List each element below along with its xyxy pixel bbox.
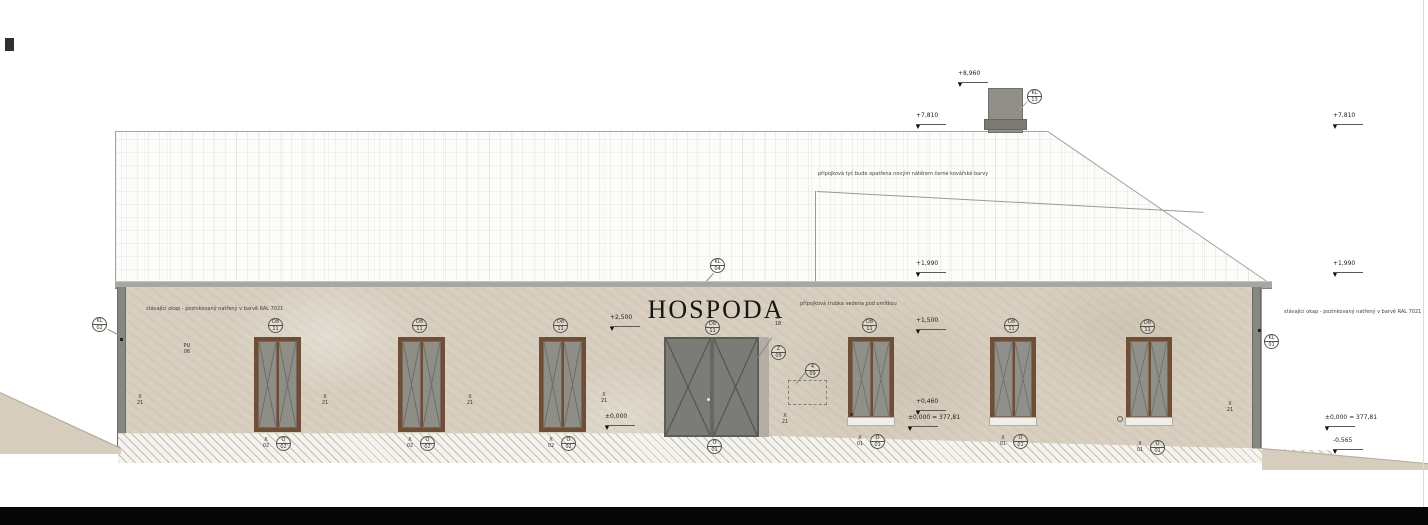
annotation-label: stávající okap - pozinkovaný natřený v b… [1284,309,1421,315]
reference-code-top: D8 [413,319,426,326]
reference-code-bottom: 21 [1223,407,1237,413]
reference-code-bottom: 21 [463,400,477,406]
window-1 [848,337,894,421]
reference-code-bottom: 21 [597,398,611,404]
drawing-frame-edge [1423,0,1424,507]
reference-text-mark: X 18 [771,315,785,327]
elevation-marker: +1,990 [1333,260,1363,273]
roof-ridge-line [115,131,1048,132]
door-leaf [421,341,441,428]
reference-code-bottom: 02 [93,325,106,331]
reference-code-top: O [871,435,884,442]
reference-code-bottom: 01 [871,442,884,448]
reference-code-bottom: 18 [771,321,785,327]
reference-code-bottom: 11 [1005,326,1018,332]
reference-code-bottom: 01 [1133,447,1147,453]
door-leaf [562,341,582,428]
elevation-flag-icon [1333,124,1363,125]
elevation-value: ±0,000 = 377,81 [908,414,960,421]
reference-bubble: D8 11 [412,318,427,333]
reference-bubble: O 02 [561,436,576,451]
reference-code-bottom: 21 [133,400,147,406]
elevation-flag-icon [908,426,938,427]
elevation-value: +2,500 [610,314,632,321]
reference-code-bottom: 02 [562,444,575,450]
main-entrance-door [664,337,759,437]
reference-code-bottom: 01 [853,441,867,447]
elevation-marker: +1,990 [916,260,946,273]
reference-code-top: D8 [269,319,282,326]
reference-code-top: D8 [1005,319,1018,326]
elevation-value: +0,460 [916,398,938,405]
reference-code-bottom: 01 [1151,448,1164,454]
reference-code-bottom: 11 [1141,327,1154,333]
reference-code-top: D8 [554,319,567,326]
reference-code-top: D8 [706,321,719,328]
reference-bubble: KL 04 [710,258,725,273]
reference-code-bottom: 11 [863,326,876,332]
elevation-marker: -0,565 [1333,437,1363,450]
reference-code-top: O [562,437,575,444]
downspout-left [117,287,126,449]
reference-code-top: D8 [1141,320,1154,327]
reference-bubble: O 01 [870,434,885,449]
reference-bubble: O 01 [1013,434,1028,449]
bottom-black-bar [0,507,1428,525]
reference-bubble: D8 11 [1004,318,1019,333]
annotation-label: přípojková trubka vedena pod omítkou [800,301,897,307]
elevation-marker: ±0,000 [605,413,635,426]
door-leaf [277,341,297,428]
reference-bubble: D8 11 [1140,319,1155,334]
door-leaf [258,341,277,428]
elevation-value: +7,810 [916,112,938,119]
reference-code-top: 4 [806,364,819,371]
downspout-right [1252,287,1261,449]
reference-text-mark: X 02 [259,437,273,449]
elevation-flag-icon [958,82,988,83]
reference-code-top: O [1014,435,1027,442]
reference-code-bottom: 01 [1265,342,1278,348]
elevation-marker: +7,810 [916,112,946,125]
reference-code-bottom: 06 [180,349,194,355]
elevation-value: +7,810 [1333,112,1355,119]
reference-code-bottom: 11 [706,328,719,334]
elevation-marker: +8,960 [958,70,988,83]
reference-text-mark: X 21 [597,392,611,404]
window-sill [847,417,895,426]
elevation-flag-icon [916,329,946,330]
reference-code-bottom: 04 [711,266,724,272]
chimney-crown [984,119,1027,130]
window-casement [1013,341,1033,417]
reference-bubble: D8 11 [553,318,568,333]
reference-code-top: O [277,437,290,444]
reference-bubble: O 02 [276,436,291,451]
door-leaf [710,339,758,435]
reference-code-bottom: 01 [708,447,721,453]
reference-text-mark: X 01 [1133,441,1147,453]
reference-bubble: D8 11 [268,318,283,333]
reference-text-mark: X 21 [1223,401,1237,413]
reference-code-top: KL [1028,90,1041,97]
reference-code-top: O [1151,441,1164,448]
elevation-flag-icon [1333,272,1363,273]
reference-text-mark: X 02 [544,437,558,449]
window-casement [871,341,891,417]
reference-code-top: KL [711,259,724,266]
elevation-marker: +0,460 [916,398,946,411]
reference-text-mark: X 21 [778,413,792,425]
reference-text-mark: X 21 [318,394,332,406]
survey-dot [1117,416,1123,422]
reference-text-mark: X 21 [463,394,477,406]
corner-reference-dot [120,338,123,341]
reference-bubble: O 01 [1150,440,1165,455]
reference-code-top: KL [93,318,106,325]
elevation-flag-icon [1333,449,1363,450]
lightning-rod-line [815,191,816,281]
annotation-text: přípojková tyč bude opatřena novým nátěr… [818,171,988,177]
door-handle [707,398,710,401]
elevation-value: +1,500 [916,317,938,324]
reference-code-bottom: 09 [806,371,819,377]
reference-bubble: D8 11 [705,320,720,335]
annotation-text: stávající okap - pozinkovaný natřený v b… [1284,309,1421,315]
door-2 [398,337,445,432]
elevation-value: ±0,000 [605,413,627,420]
elevation-flag-icon [1325,426,1355,427]
elevation-value: +1,990 [916,260,938,267]
window-casement [852,341,871,417]
reference-code-bottom: 11 [413,326,426,332]
reference-bubble: KL 02 [92,317,107,332]
door-leaf [402,341,421,428]
roof-left-edge-line [115,131,116,283]
reference-code-bottom: 02 [259,443,273,449]
corner-reference-dot [1258,329,1261,332]
window-casement [1149,341,1169,417]
elevation-value: ±0,000 = 377,81 [1325,414,1377,421]
edge-artifact [5,38,14,51]
door-leaf [666,339,710,435]
reference-text-mark: X 21 [133,394,147,406]
reference-code-bottom: 21 [778,419,792,425]
reference-bubble: D8 11 [862,318,877,333]
window-casement [994,341,1013,417]
reference-code-bottom: 02 [544,443,558,449]
annotation-text: stávající okap - pozinkovaný natřený v b… [146,306,283,312]
reference-bubble: O 02 [420,436,435,451]
reference-code-top: D8 [863,319,876,326]
reference-code-top: Z [772,346,785,353]
annotation-text: přípojková trubka vedena pod omítkou [800,301,897,307]
reference-bubble: 4 09 [805,363,820,378]
reference-code-bottom: 02 [403,443,417,449]
reference-code-bottom: 02 [421,444,434,450]
elevation-marker: ±0,000 = 377,81 [1325,414,1377,427]
elevation-flag-icon [916,272,946,273]
elevation-marker: ±0,000 = 377,81 [908,414,960,427]
reference-text-mark: PU 06 [180,343,194,355]
reference-bubble: Z 09 [771,345,786,360]
window-3 [1126,337,1172,421]
elevation-flag-icon [916,124,946,125]
reference-text-mark: X 01 [996,435,1010,447]
reference-code-bottom: 13 [1028,97,1041,103]
elevation-marker: +7,810 [1333,112,1363,125]
reference-bubble: KL 01 [1264,334,1279,349]
elevation-drawing: HOSPODA stávající okap - pozinkovaný nat… [0,0,1428,525]
wall-corner-line [1261,287,1262,449]
reference-code-bottom: 11 [554,326,567,332]
reference-code-top: KL [1265,335,1278,342]
elevation-marker: +1,500 [916,317,946,330]
reference-text-mark: X 02 [403,437,417,449]
reference-text-mark: X 01 [853,435,867,447]
elevation-flag-icon [605,425,635,426]
window-2 [990,337,1036,421]
elevation-value: +1,990 [1333,260,1355,267]
reference-bubble: KL 13 [1027,89,1042,104]
elevation-marker: +2,500 [610,314,640,327]
elevation-flag-icon [916,410,946,411]
reference-code-top: O [708,440,721,447]
door-1 [254,337,301,432]
reference-code-bottom: 09 [772,353,785,359]
window-sill [989,417,1037,426]
sign-board-outline [788,380,827,405]
reference-code-bottom: 01 [1014,442,1027,448]
reference-code-top: O [421,437,434,444]
survey-dot [850,413,853,416]
annotation-label: přípojková tyč bude opatřena novým nátěr… [818,171,988,177]
door-leaf [543,341,562,428]
reference-code-bottom: 21 [318,400,332,406]
window-sill [1125,417,1173,426]
door-3 [539,337,586,432]
elevation-value: +8,960 [958,70,980,77]
window-casement [1130,341,1149,417]
reference-code-bottom: 11 [269,326,282,332]
reference-code-bottom: 02 [277,444,290,450]
reference-bubble: O 01 [707,439,722,454]
elevation-value: -0,565 [1333,437,1352,444]
annotation-label: stávající okap - pozinkovaný natřený v b… [146,306,283,312]
reference-code-bottom: 01 [996,441,1010,447]
elevation-flag-icon [610,326,640,327]
